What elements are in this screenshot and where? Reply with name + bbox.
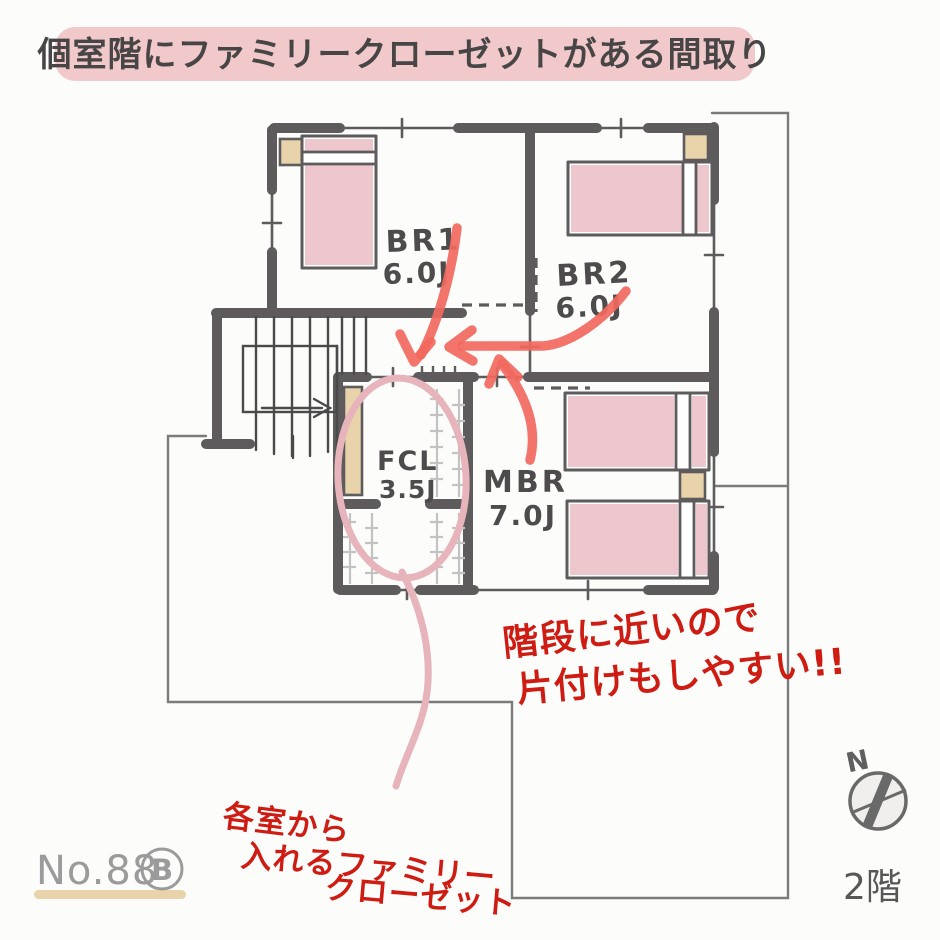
bed-br2 — [568, 134, 712, 235]
title-banner: 個室階にファミリークローゼットがある間取り — [37, 27, 773, 81]
plan-number: No.88 B — [34, 848, 186, 899]
bed-br2-pillow — [684, 134, 708, 160]
room-size-fcl: 3.5J — [379, 475, 437, 504]
note-fcl: 各室から 入れるファミリー クローゼット — [220, 798, 518, 923]
bed-br1-pillow — [280, 139, 302, 165]
compass-icon: N — [843, 744, 906, 829]
page-title: 個室階にファミリークローゼットがある間取り — [37, 35, 773, 75]
room-size-br1: 6.0J — [382, 256, 451, 291]
bed-mbr-1 — [565, 393, 709, 470]
note-stairs: 階段に近いので 片付けもしやすい!! — [501, 597, 848, 711]
floorplan-sketch: 個室階にファミリークローゼットがある間取り — [0, 0, 940, 940]
room-size-mbr: 7.0J — [489, 499, 557, 532]
bed-mbr-2 — [567, 472, 709, 578]
room-label-fcl: FCL — [377, 446, 438, 477]
room-label-mbr: MBR — [483, 465, 568, 500]
plan-number-text: No.88 — [36, 848, 158, 894]
plan-number-badge: B — [151, 853, 173, 887]
fcl-highlight-leader — [396, 572, 428, 786]
floor-label: 2階 — [843, 867, 902, 908]
floorplan-drawing: 個室階にファミリークローゼットがある間取り — [0, 0, 940, 940]
bed-mbr-pillow — [680, 472, 705, 499]
bed-br1 — [280, 136, 376, 268]
